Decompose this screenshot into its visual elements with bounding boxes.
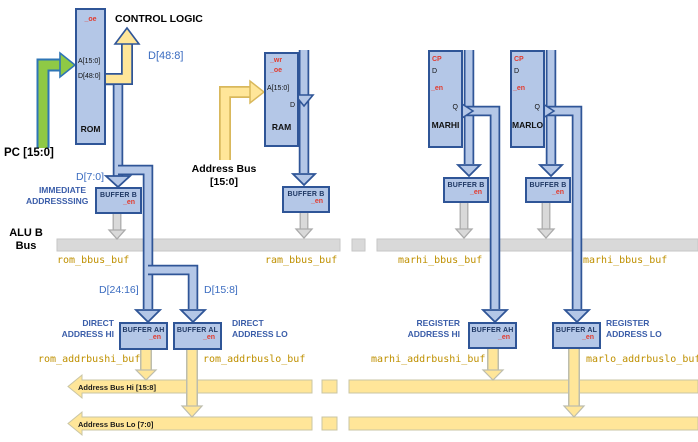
ram-block: _wr _oe A[15:0] D RAM [264,52,299,147]
marlo-q-pin: Q [535,104,540,111]
ram-wr-pin: _wr [270,57,282,64]
buffer-label: BUFFER B [284,188,328,198]
buffer-en: _en [445,189,487,196]
marhi-buffer-ah: BUFFER AH _en [468,322,517,349]
marhi-label: MARHI [430,120,461,130]
rom-buffer-ah: BUFFER AH _en [119,322,168,350]
ram-a-pin: A[15:0] [267,85,289,92]
gray-arrow-rom [109,214,125,239]
yellow-drop-marhi-ah [483,349,503,380]
alu-b-bus-label: ALU B Bus [6,227,46,253]
buffer-label: BUFFER B [97,189,140,199]
marlo-block: CP D _en Q MARLO [510,50,545,148]
marhi-addrbushi-buf-label: marhi_addrbushi_buf [371,354,485,365]
control-logic-arrow [106,28,139,79]
address-bus-hi-text: Address Bus Hi [15:8] [78,383,156,392]
rom-buffer-al: BUFFER AL _en [173,322,222,350]
marhi-buffer-b: BUFFER B _en [443,177,489,203]
buffer-en: _en [284,198,328,205]
address-bus-hi-bar [68,375,698,398]
marlo-buffer-al: BUFFER AL _en [552,322,601,349]
buffer-label: BUFFER AH [470,324,515,334]
rom-addrbuslo-buf-label: rom_addrbuslo_buf [203,354,305,365]
marhi-bbus-buf-label-right: marhi_bbus_buf [583,255,667,266]
ram-buffer-b: BUFFER B _en [282,186,330,213]
buffer-en: _en [97,199,140,206]
marhi-bbus-buf-label-left: marhi_bbus_buf [398,255,482,266]
marhi-en-pin: _en [431,85,443,92]
marlo-buffer-b: BUFFER B _en [525,177,571,203]
marlo-d-pin: D [514,68,519,75]
d15-8-label: D[15:8] [204,284,238,296]
buffer-label: BUFFER B [445,179,487,189]
direct-address-hi-label: DIRECT ADDRESS HI [58,318,114,340]
marhi-d-pin: D [432,68,437,75]
buffer-en: _en [527,189,569,196]
gray-arrow-ram [296,213,312,238]
marhi-q-pin: Q [453,104,458,111]
address-bus-label: Address Bus [15:0] [186,163,262,189]
buffer-en: _en [554,334,599,341]
rom-bbus-buf-label: rom_bbus_buf [57,255,129,266]
address-bus-lo-text: Address Bus Lo [7:0] [78,420,153,429]
buffer-label: BUFFER AL [554,324,599,334]
ram-bbus-buf-label: ram_bbus_buf [265,255,337,266]
pc-label: PC [15:0] [4,147,54,159]
buffer-label: BUFFER AL [175,324,220,334]
buffer-en: _en [175,334,220,341]
buffer-label: BUFFER B [527,179,569,189]
diagram-canvas: _oe A[15:0] D[48:0] ROM _wr _oe A[15:0] … [0,0,698,442]
rom-oe-pin: _oe [77,16,104,23]
gray-arrow-marhi [456,203,472,238]
d7-0-label: D[7:0] [76,171,104,183]
rom-block: _oe A[15:0] D[48:0] ROM [75,8,106,145]
marlo-addrbuslo-buf-label: marlo_addrbuslo_buf [586,354,698,365]
direct-address-lo-label: DIRECT ADDRESS LO [232,318,292,340]
rom-d-pin: D[48:0] [78,73,101,80]
buffer-en: _en [121,334,166,341]
gray-arrow-marlo [538,203,554,238]
ram-label: RAM [266,122,297,132]
buffer-en: _en [470,334,515,341]
d24-16-label: D[24:16] [99,284,139,296]
marlo-cp-pin: CP [514,56,524,63]
d48-8-label: D[48:8] [148,50,183,62]
rom-addrbushi-buf-label: rom_addrbushi_buf [38,354,140,365]
buffer-label: BUFFER AH [121,324,166,334]
rom-a-pin: A[15:0] [78,58,100,65]
marhi-cp-pin: CP [432,56,442,63]
rom-label: ROM [77,124,104,134]
control-logic-label: CONTROL LOGIC [115,13,203,25]
marhi-block: CP D _en Q MARHI [428,50,463,148]
ram-d-pin: D [290,102,295,109]
ram-address-arrow [225,81,264,160]
ram-oe-pin: _oe [270,67,282,74]
marlo-en-pin: _en [513,85,525,92]
rom-buffer-b: BUFFER B _en [95,187,142,214]
pc-arrow [43,53,75,148]
address-bus-lo-bar [68,412,698,435]
register-address-lo-label: REGISTER ADDRESS LO [606,318,668,340]
marlo-label: MARLO [512,120,543,130]
immediate-addressing-label: IMMEDIATE ADDRESSSING [26,185,86,207]
register-address-hi-label: REGISTER ADDRESS HI [404,318,460,340]
